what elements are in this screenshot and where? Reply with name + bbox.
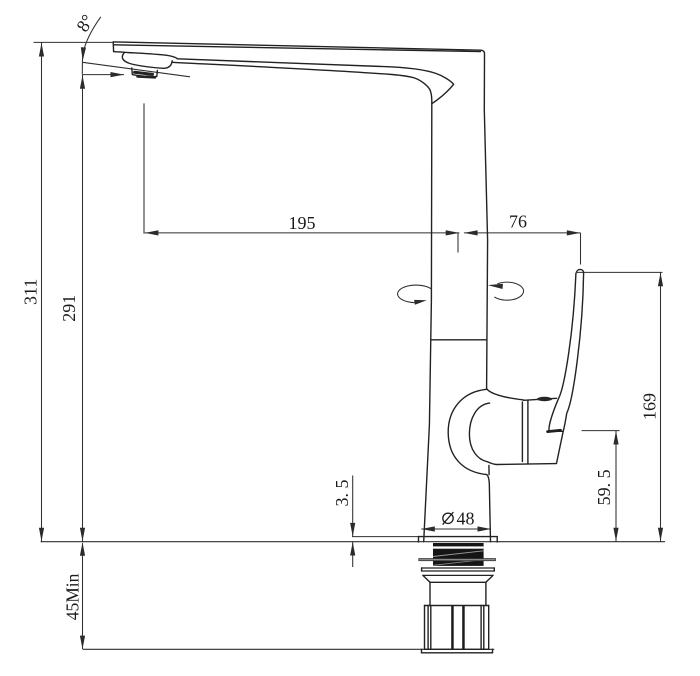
svg-text:169: 169 — [640, 393, 660, 420]
svg-text:45Min: 45Min — [63, 573, 83, 620]
svg-text:76: 76 — [509, 212, 527, 232]
svg-text:59. 5: 59. 5 — [594, 469, 614, 505]
svg-text:3. 5: 3. 5 — [332, 480, 352, 507]
svg-text:48: 48 — [457, 508, 475, 528]
svg-text:291: 291 — [59, 295, 79, 322]
svg-text:311: 311 — [20, 279, 40, 305]
svg-text:195: 195 — [289, 213, 316, 233]
